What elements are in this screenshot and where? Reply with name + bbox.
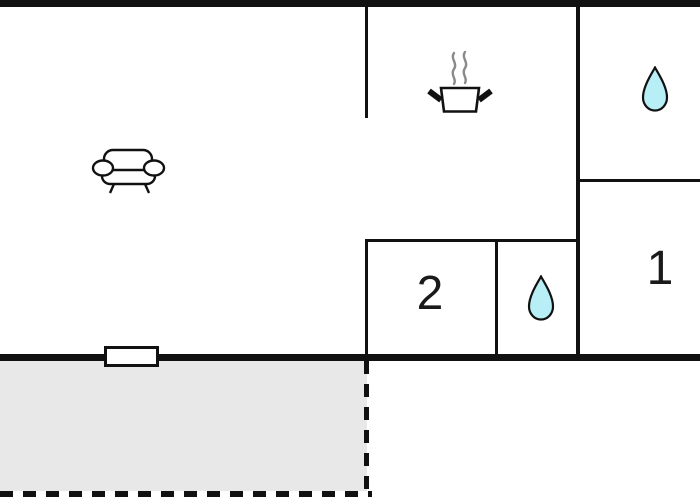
terrace-dashed-border-bottom: [0, 491, 372, 497]
kitchen: [368, 0, 576, 232]
room-label-1: 1: [635, 243, 685, 295]
room-label-2: 2: [405, 268, 455, 320]
water-drop-icon: [641, 66, 669, 112]
wall-top: [0, 0, 700, 7]
wall-bedroom2-bathroom-divider: [495, 242, 498, 354]
floor-plan: 1 2: [0, 0, 700, 500]
terrace: [0, 361, 367, 491]
wall-bedroom2-top: [365, 239, 579, 242]
wall-kitchen-divider: [365, 7, 368, 118]
terrace-dashed-border-right: [364, 361, 369, 497]
water-drop-icon: [527, 275, 555, 321]
bathroom-top: [580, 0, 700, 172]
steam-icon: [453, 53, 455, 84]
window-icon: [104, 346, 159, 367]
wall-bedroom2-left: [365, 242, 368, 354]
steam-icon: [464, 52, 466, 83]
wall-bathroom-bedroom1-divider: [580, 179, 700, 182]
sofa-icon: [88, 146, 168, 196]
cooking-pot-icon: [426, 50, 494, 114]
living-room: [0, 0, 365, 347]
